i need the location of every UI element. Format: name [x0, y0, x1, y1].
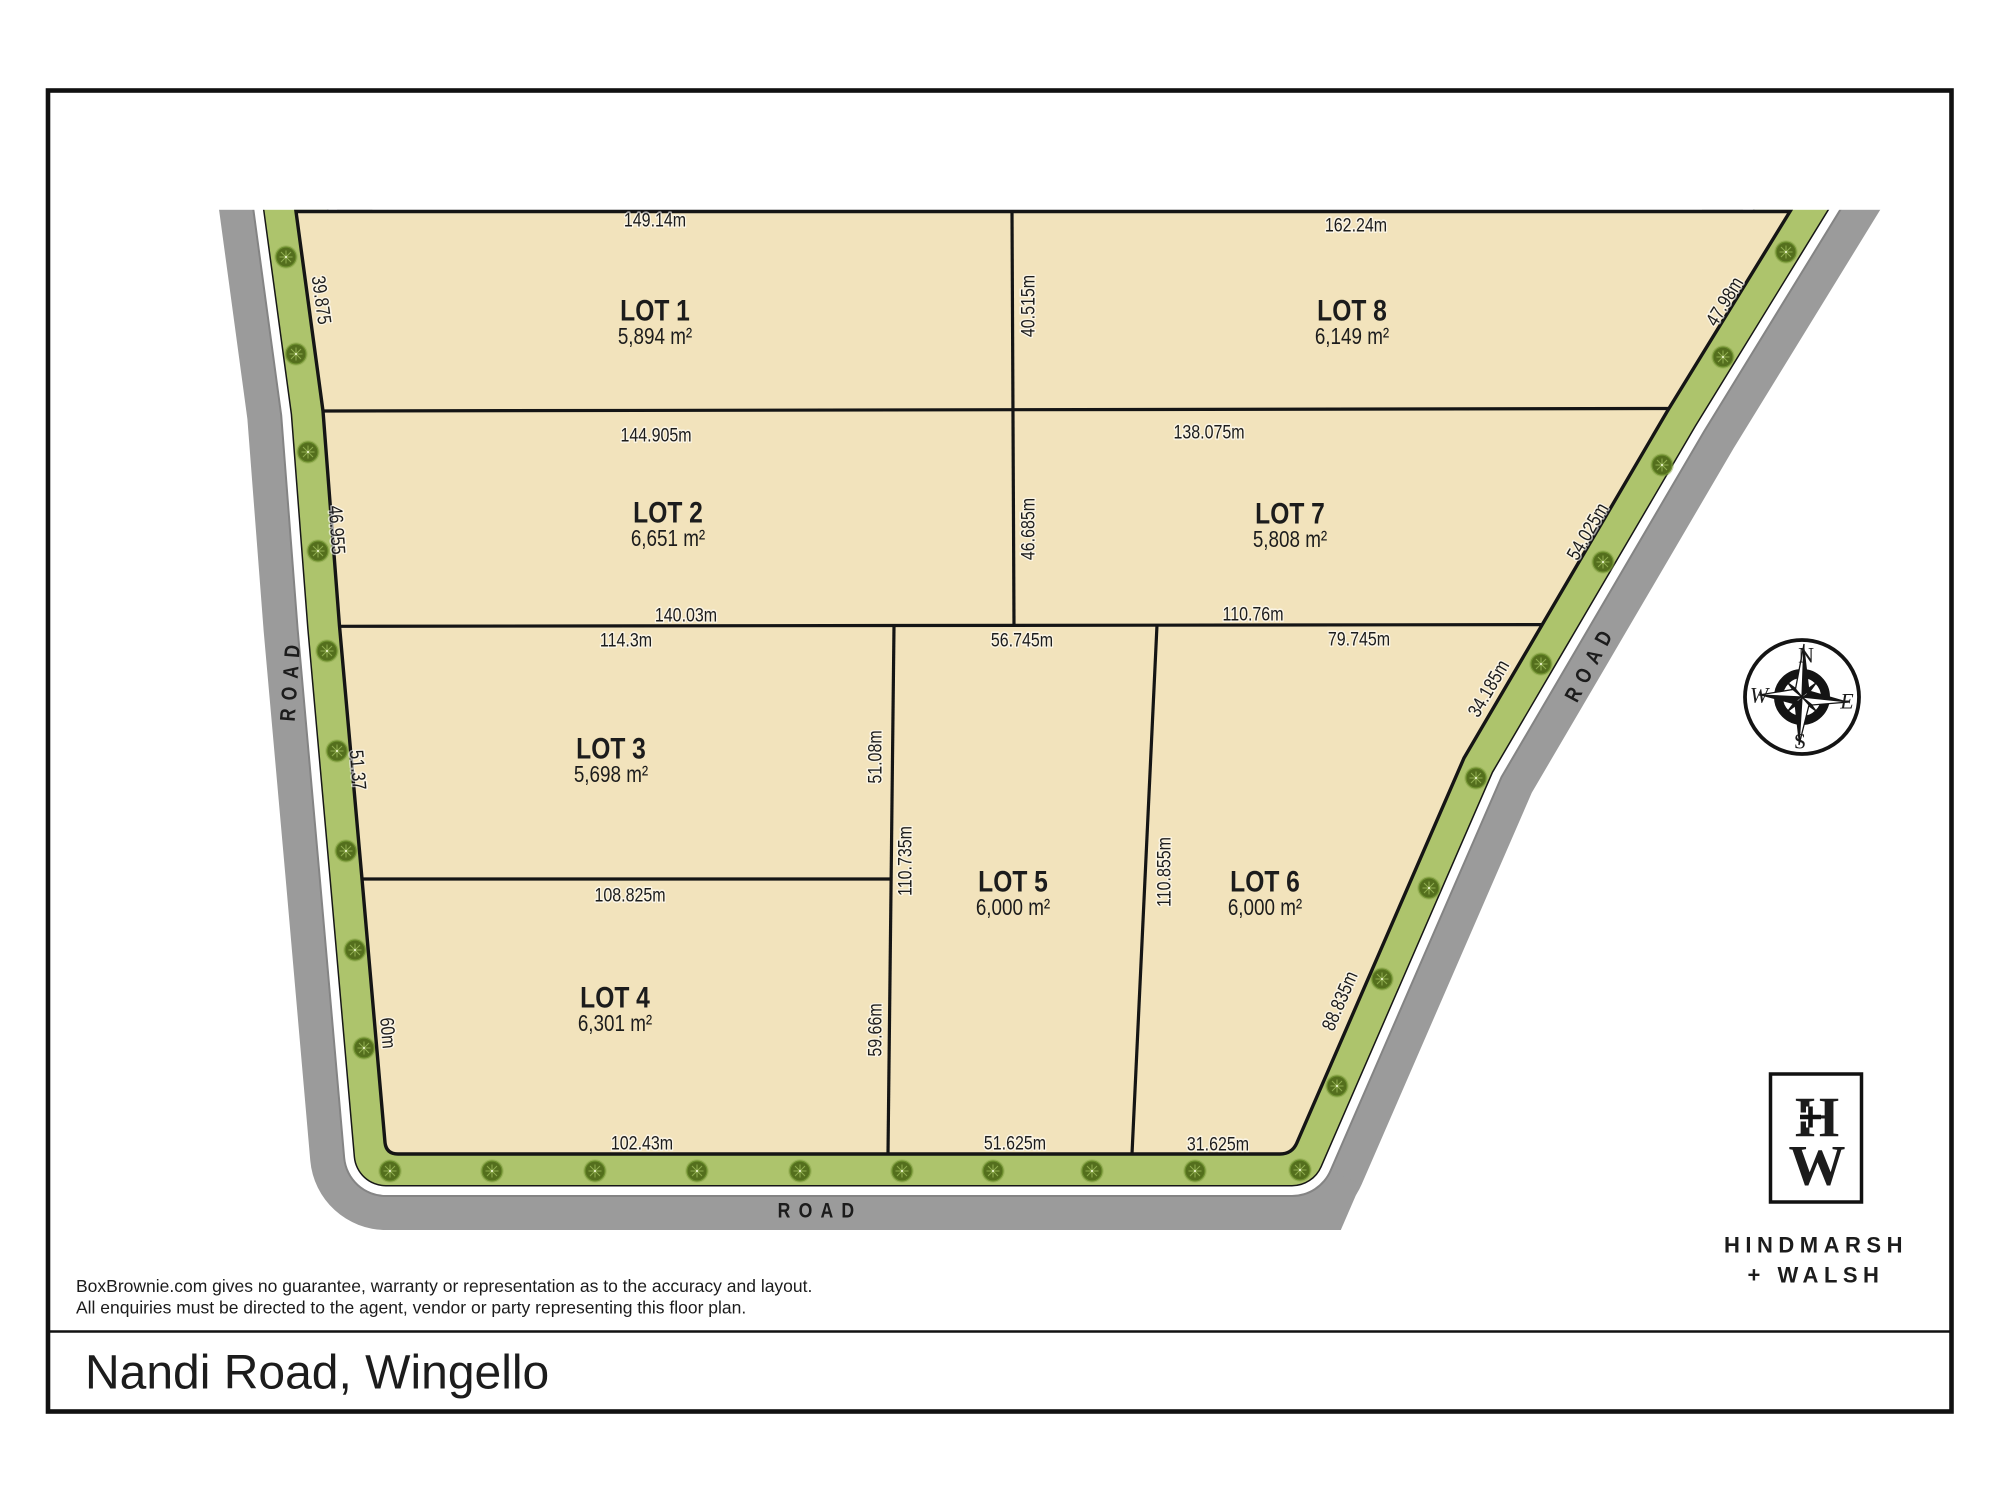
svg-text:LOT 5: LOT 5: [978, 864, 1048, 898]
svg-text:162.24m: 162.24m: [1325, 214, 1387, 236]
svg-text:LOT 4: LOT 4: [580, 980, 650, 1014]
svg-text:S: S: [1794, 729, 1806, 754]
svg-text:E: E: [1839, 689, 1854, 714]
svg-text:6,301 m²: 6,301 m²: [578, 1011, 652, 1036]
svg-text:5,808 m²: 5,808 m²: [1253, 527, 1327, 552]
svg-text:5,894 m²: 5,894 m²: [618, 324, 692, 349]
svg-text:46.685m: 46.685m: [1017, 498, 1039, 560]
svg-text:All enquiries must be directed: All enquiries must be directed to the ag…: [76, 1298, 746, 1318]
svg-text:ROAD: ROAD: [778, 1199, 863, 1223]
svg-text:110.855m: 110.855m: [1153, 837, 1175, 907]
svg-text:LOT 7: LOT 7: [1255, 496, 1325, 530]
svg-text:138.075m: 138.075m: [1173, 421, 1244, 443]
svg-text:60m: 60m: [376, 1017, 400, 1050]
svg-text:51.08m: 51.08m: [864, 730, 886, 783]
svg-text:108.825m: 108.825m: [594, 884, 665, 906]
svg-text:LOT 2: LOT 2: [633, 495, 703, 529]
svg-text:5,698 m²: 5,698 m²: [574, 762, 648, 787]
svg-text:BoxBrownie.com gives no guaran: BoxBrownie.com gives no guarantee, warra…: [76, 1276, 812, 1296]
svg-text:46.955: 46.955: [324, 505, 349, 555]
svg-text:51.37: 51.37: [345, 749, 370, 791]
svg-text:6,000 m²: 6,000 m²: [1228, 895, 1302, 920]
svg-text:102.43m: 102.43m: [611, 1132, 673, 1154]
svg-text:HINDMARSH: HINDMARSH: [1724, 1233, 1908, 1258]
svg-text:40.515m: 40.515m: [1017, 275, 1039, 337]
svg-text:79.745m: 79.745m: [1328, 628, 1390, 650]
svg-text:144.905m: 144.905m: [620, 424, 691, 446]
svg-text:+ WALSH: + WALSH: [1748, 1263, 1885, 1288]
svg-text:LOT 8: LOT 8: [1317, 293, 1387, 327]
svg-text:31.625m: 31.625m: [1187, 1133, 1249, 1155]
svg-text:114.3m: 114.3m: [600, 629, 652, 651]
svg-text:110.76m: 110.76m: [1222, 603, 1283, 625]
svg-text:LOT 1: LOT 1: [620, 293, 690, 327]
svg-text:149.14m: 149.14m: [624, 209, 686, 231]
svg-text:LOT 6: LOT 6: [1230, 864, 1300, 898]
svg-text:6,149 m²: 6,149 m²: [1315, 324, 1389, 349]
svg-text:6,651 m²: 6,651 m²: [631, 526, 705, 551]
svg-text:Nandi Road, Wingello: Nandi Road, Wingello: [85, 1347, 549, 1400]
svg-text:110.735m: 110.735m: [894, 826, 916, 896]
svg-text:W: W: [1750, 683, 1770, 708]
svg-text:59.66m: 59.66m: [864, 1003, 886, 1056]
svg-text:140.03m: 140.03m: [655, 604, 717, 626]
svg-text:6,000 m²: 6,000 m²: [976, 895, 1050, 920]
svg-text:51.625m: 51.625m: [984, 1132, 1046, 1154]
svg-text:56.745m: 56.745m: [991, 629, 1053, 651]
svg-text:N: N: [1798, 643, 1814, 668]
svg-text:LOT 3: LOT 3: [576, 731, 646, 765]
svg-text:W: W: [1789, 1135, 1846, 1198]
